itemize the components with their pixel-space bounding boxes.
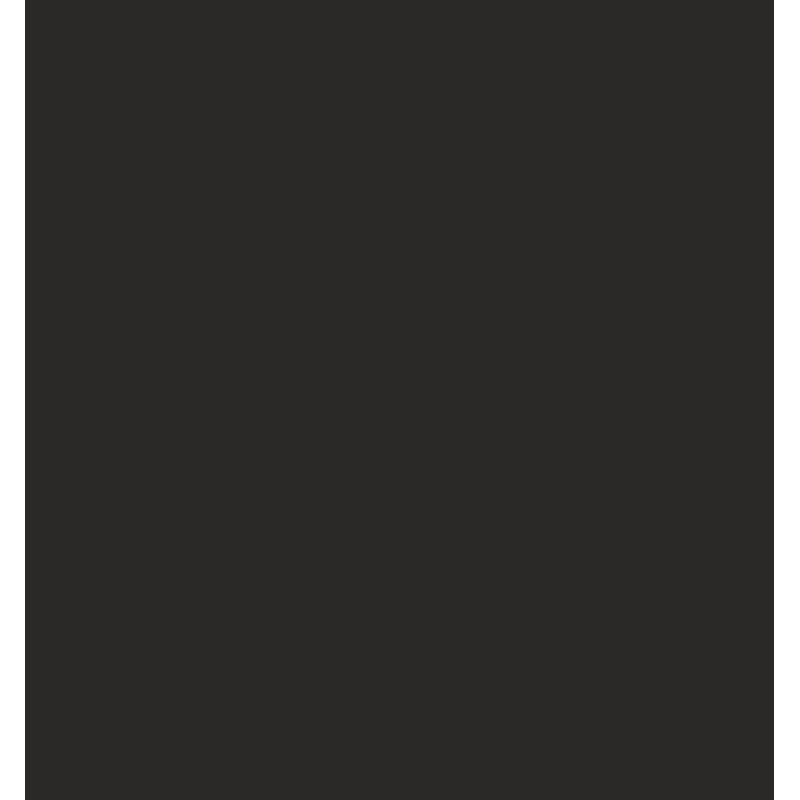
screen-background	[0, 0, 800, 800]
left-margin	[0, 0, 25, 800]
blank-dark-content-area	[25, 0, 774, 800]
right-margin	[774, 0, 800, 800]
